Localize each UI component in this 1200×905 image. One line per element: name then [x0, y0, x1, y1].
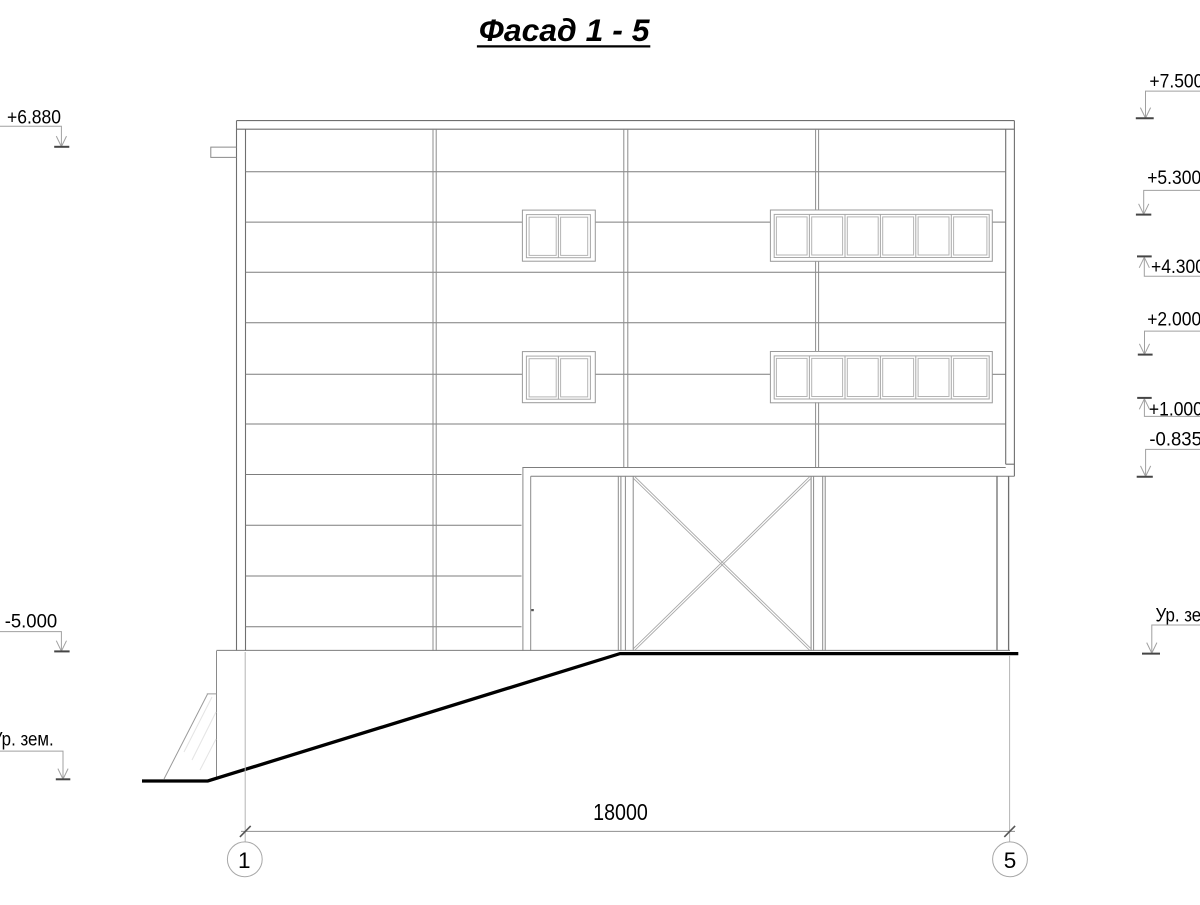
svg-text:1: 1: [238, 848, 251, 873]
svg-text:Ур. зем.: Ур. зем.: [1156, 606, 1200, 627]
svg-text:+2.000: +2.000: [1147, 310, 1200, 331]
svg-text:Ур. зем.: Ур. зем.: [0, 729, 54, 750]
svg-text:+1.000: +1.000: [1149, 400, 1200, 421]
svg-text:-5.000: -5.000: [5, 611, 58, 632]
svg-text:+7.500: +7.500: [1149, 71, 1200, 92]
svg-text:+6.880: +6.880: [7, 107, 61, 128]
svg-text:18000: 18000: [593, 799, 648, 825]
svg-text:Фасад 1 - 5: Фасад 1 - 5: [479, 12, 650, 48]
svg-text:5: 5: [1004, 848, 1017, 873]
svg-text:+4.300: +4.300: [1151, 257, 1200, 278]
svg-text:-0.835: -0.835: [1149, 430, 1200, 451]
svg-text:+5.300: +5.300: [1147, 168, 1200, 189]
